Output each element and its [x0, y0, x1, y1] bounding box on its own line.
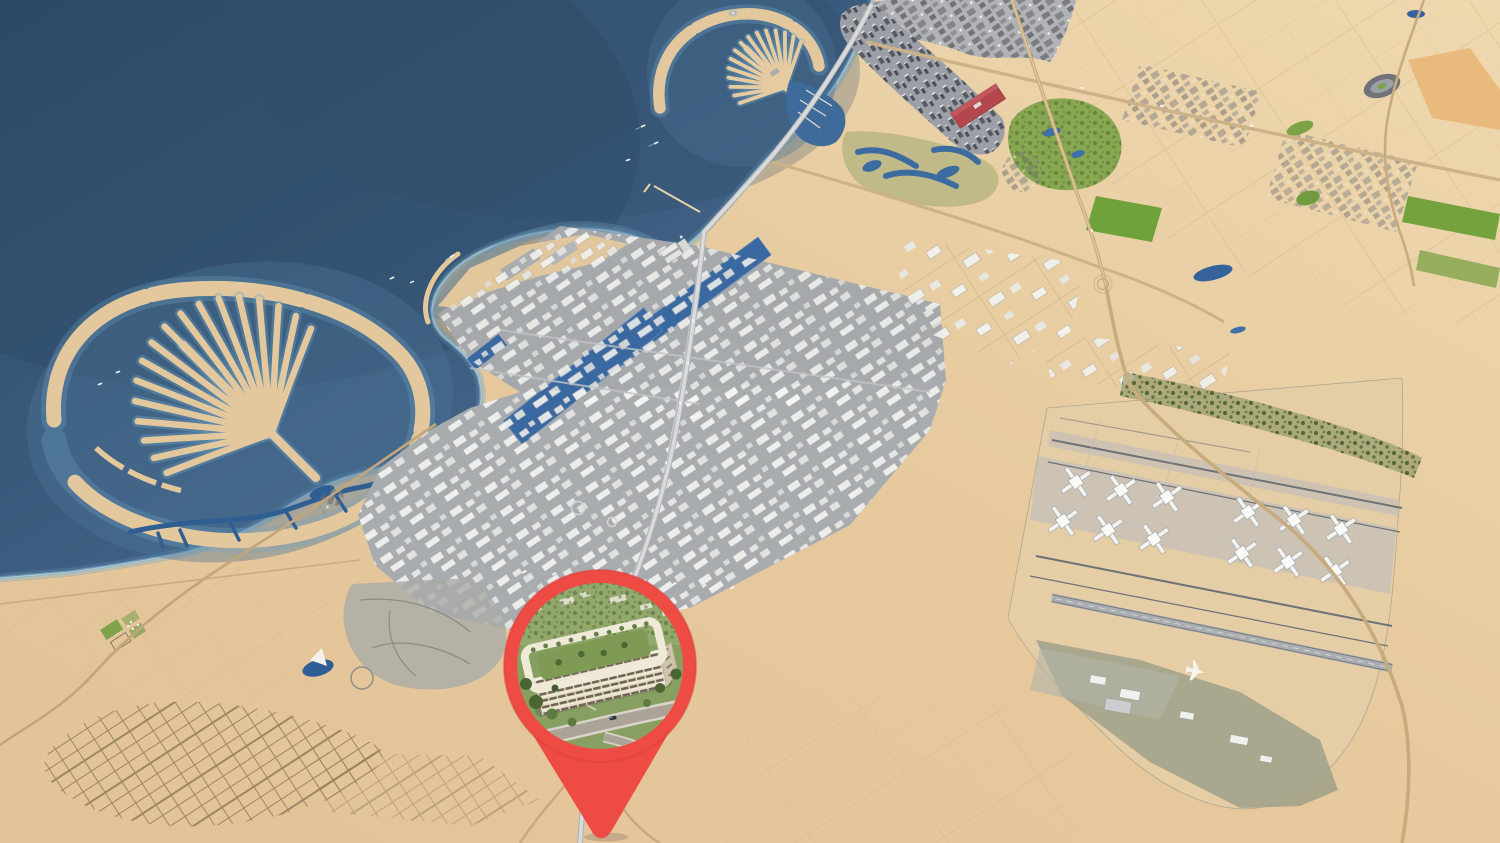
- palm-fronds-large: [135, 297, 316, 478]
- attraction-cluster: [1002, 152, 1042, 192]
- map-viewport: [0, 0, 1500, 843]
- lake: [1407, 10, 1425, 18]
- dubai-aerial-map: [0, 0, 1500, 843]
